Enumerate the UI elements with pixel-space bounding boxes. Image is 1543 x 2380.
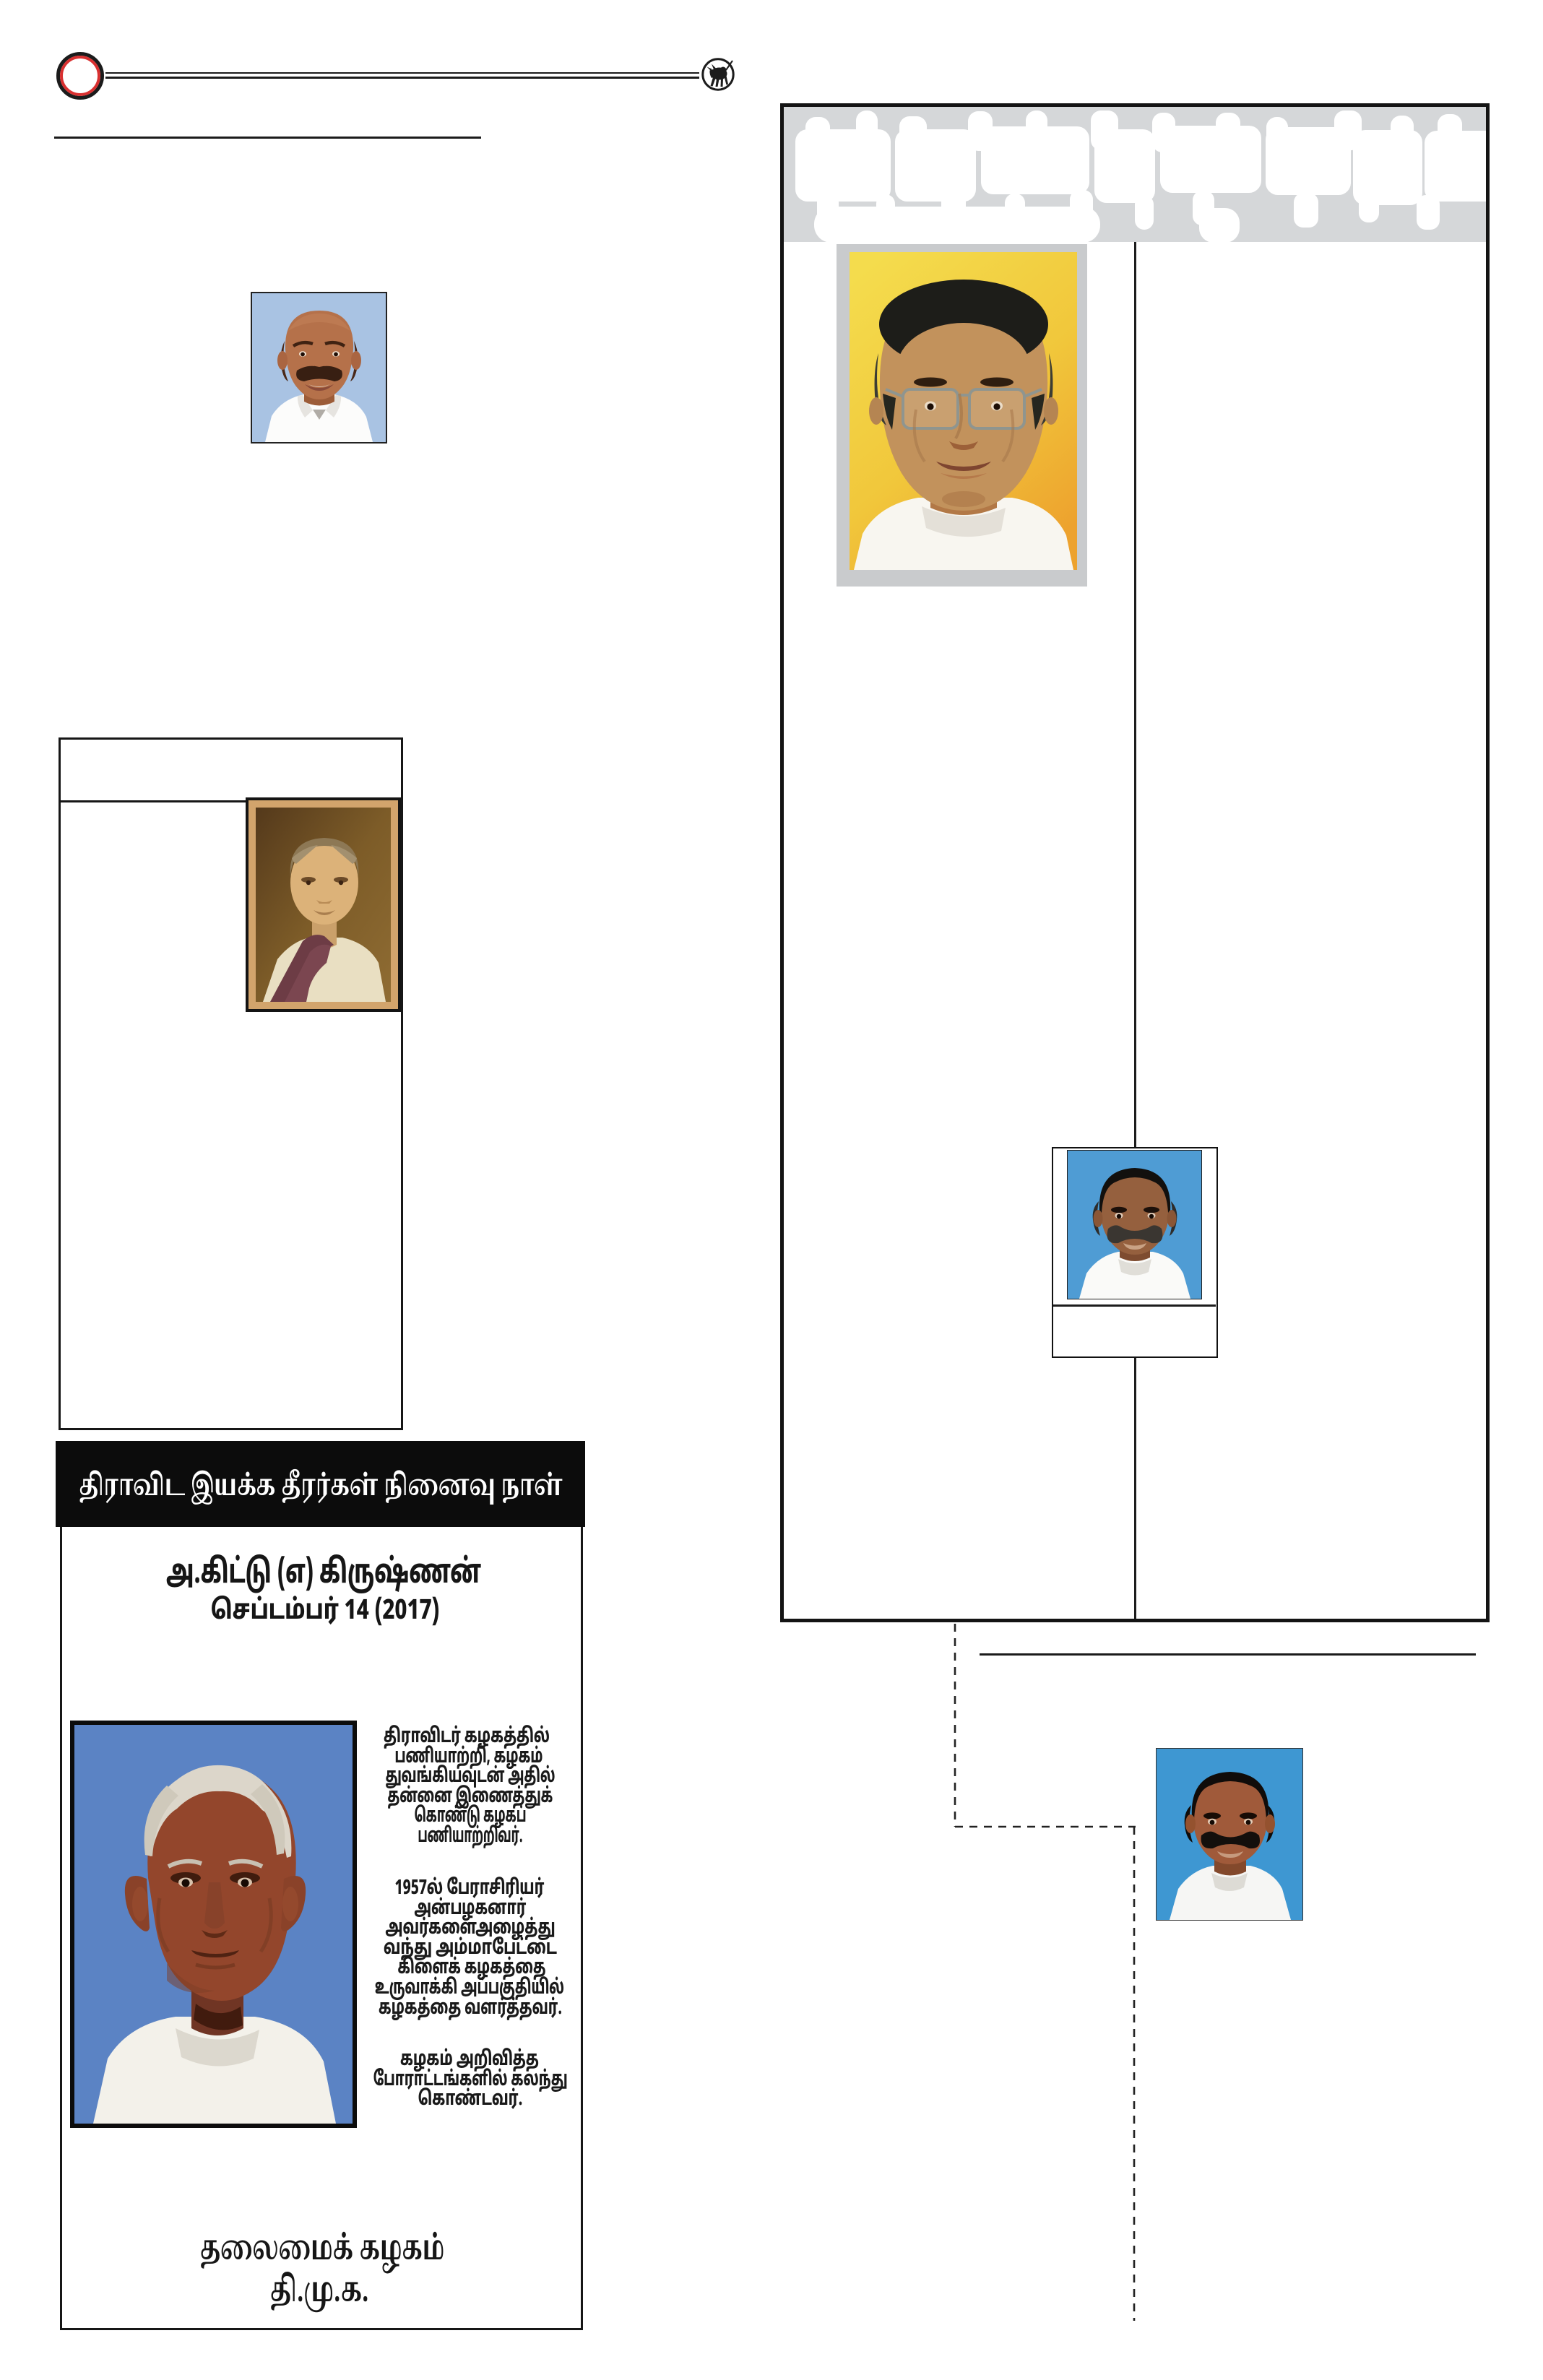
svg-text:திராவிட இயக்க தீரர்கள் நினைவு: திராவிட இயக்க தீரர்கள் நினைவு நாள் xyxy=(79,1464,563,1510)
svg-text:அ.கிட்டு (எ) கிருஷ்ணன்: அ.கிட்டு (எ) கிருஷ்ணன் xyxy=(166,1554,481,1596)
svg-text:கழகத்தை வளர்த்தவர்.: கழகத்தை வளர்த்தவர். xyxy=(379,1996,562,2022)
svg-text:செப்டம்பர் 14 (2017): செப்டம்பர் 14 (2017) xyxy=(211,1595,440,1630)
svg-text:கொண்டவர்.: கொண்டவர். xyxy=(418,2087,523,2113)
svg-text:தி.மு.க.: தி.மு.க. xyxy=(270,2266,369,2319)
svg-text:பணியாற்றிவர்.: பணியாற்றிவர். xyxy=(418,1825,523,1850)
